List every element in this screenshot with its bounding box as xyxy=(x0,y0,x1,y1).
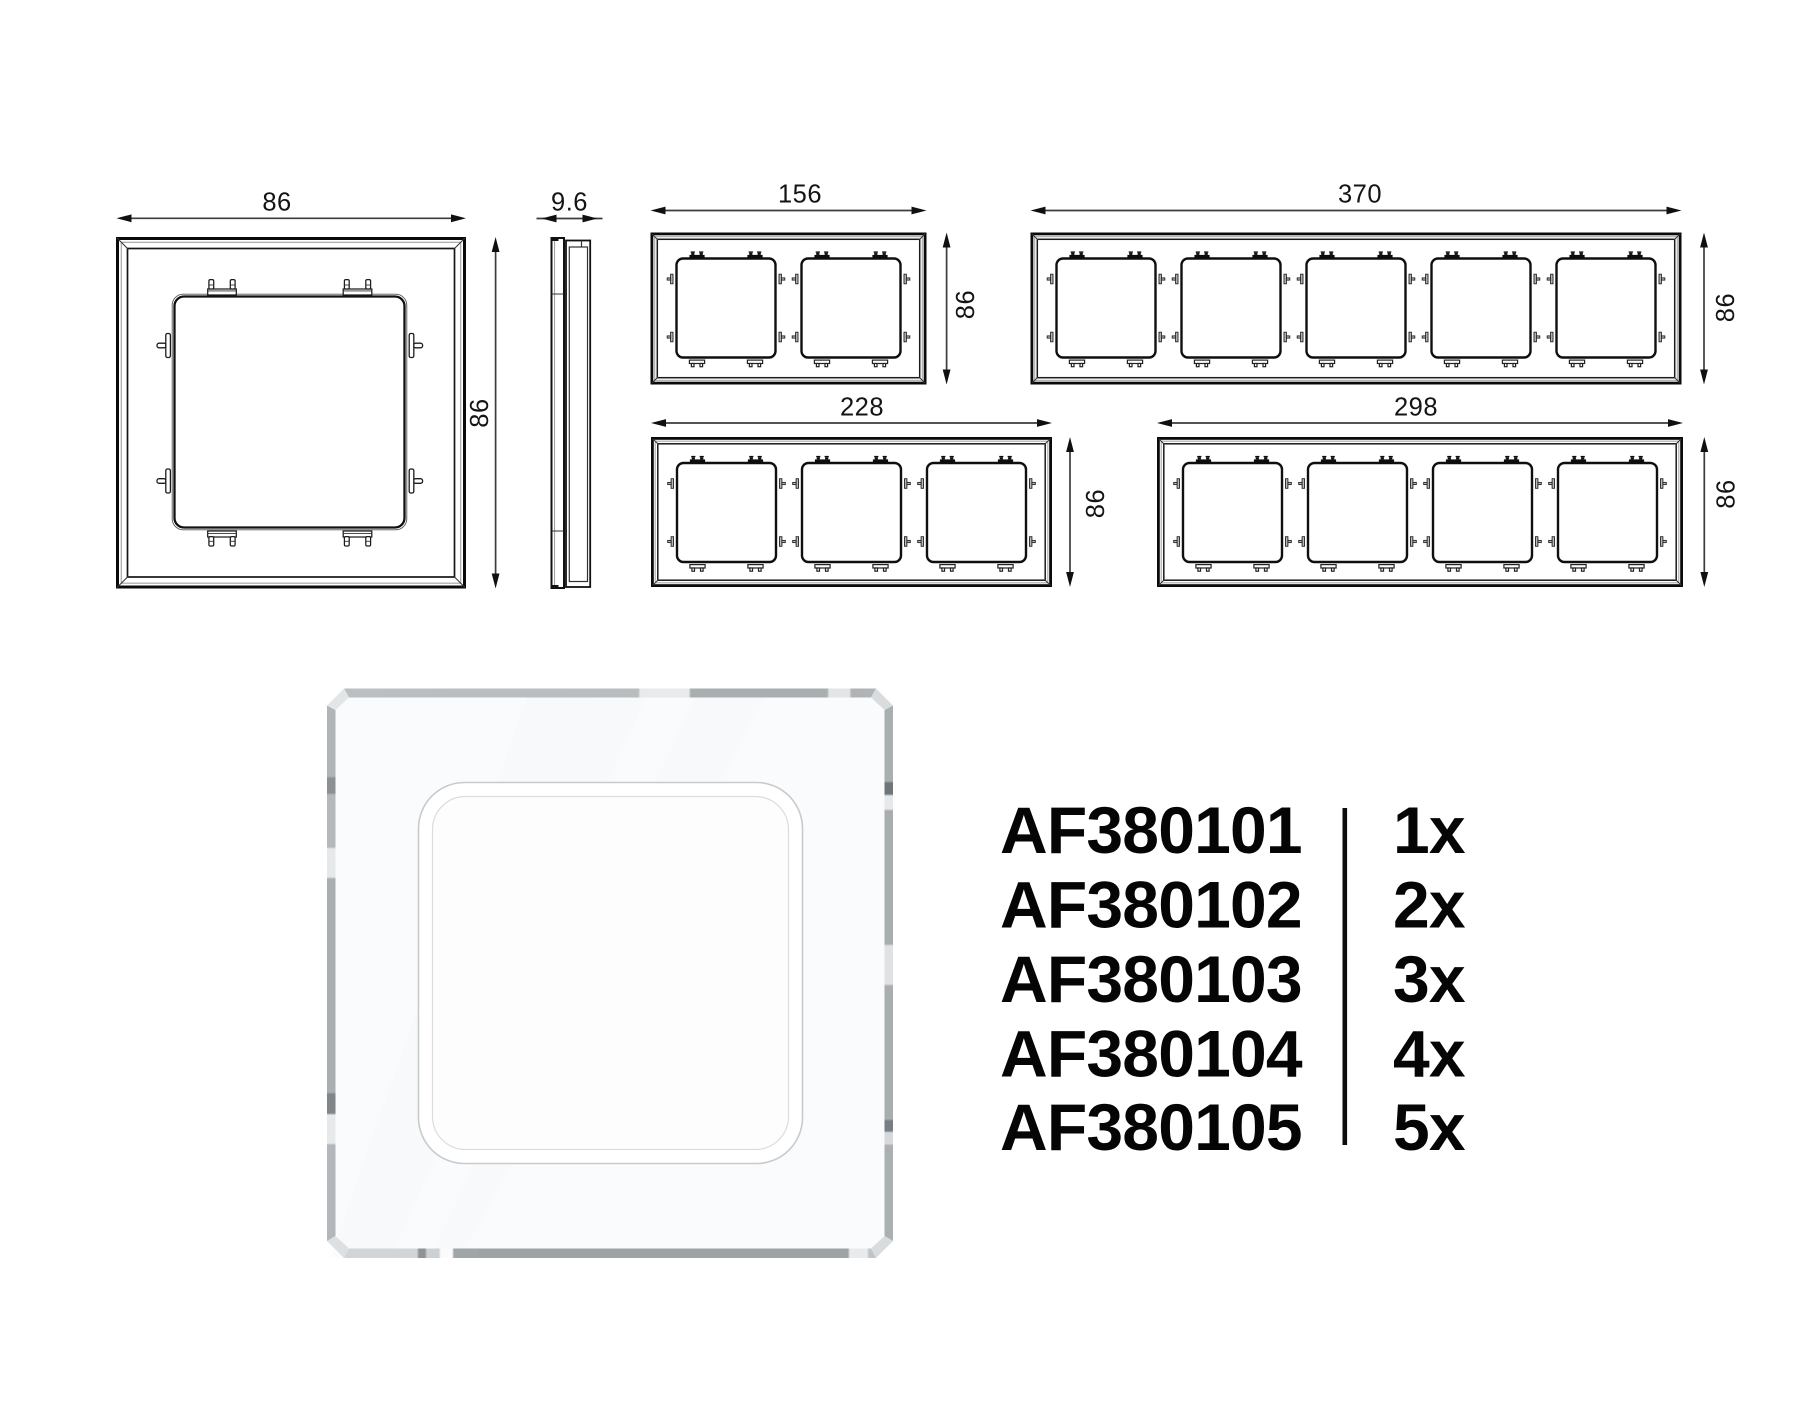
svg-text:4x: 4x xyxy=(1393,1017,1466,1091)
svg-text:370: 370 xyxy=(1338,181,1382,209)
svg-text:86: 86 xyxy=(466,398,494,427)
svg-text:9.6: 9.6 xyxy=(551,189,588,217)
svg-text:AF380103: AF380103 xyxy=(1000,942,1302,1016)
svg-text:156: 156 xyxy=(778,181,822,209)
svg-text:1x: 1x xyxy=(1393,793,1466,867)
svg-text:AF380104: AF380104 xyxy=(1000,1017,1303,1091)
svg-text:298: 298 xyxy=(1394,393,1438,421)
svg-text:2x: 2x xyxy=(1393,868,1466,942)
svg-text:3x: 3x xyxy=(1393,942,1466,1016)
svg-text:86: 86 xyxy=(1082,489,1110,518)
svg-text:AF380102: AF380102 xyxy=(1000,868,1302,942)
svg-text:AF380105: AF380105 xyxy=(1000,1090,1302,1164)
svg-text:86: 86 xyxy=(1713,479,1741,508)
svg-text:AF380101: AF380101 xyxy=(1000,793,1302,867)
svg-text:86: 86 xyxy=(1712,293,1740,322)
svg-text:228: 228 xyxy=(840,393,884,421)
svg-text:86: 86 xyxy=(952,290,980,319)
svg-text:86: 86 xyxy=(262,189,291,217)
svg-text:5x: 5x xyxy=(1393,1090,1466,1164)
